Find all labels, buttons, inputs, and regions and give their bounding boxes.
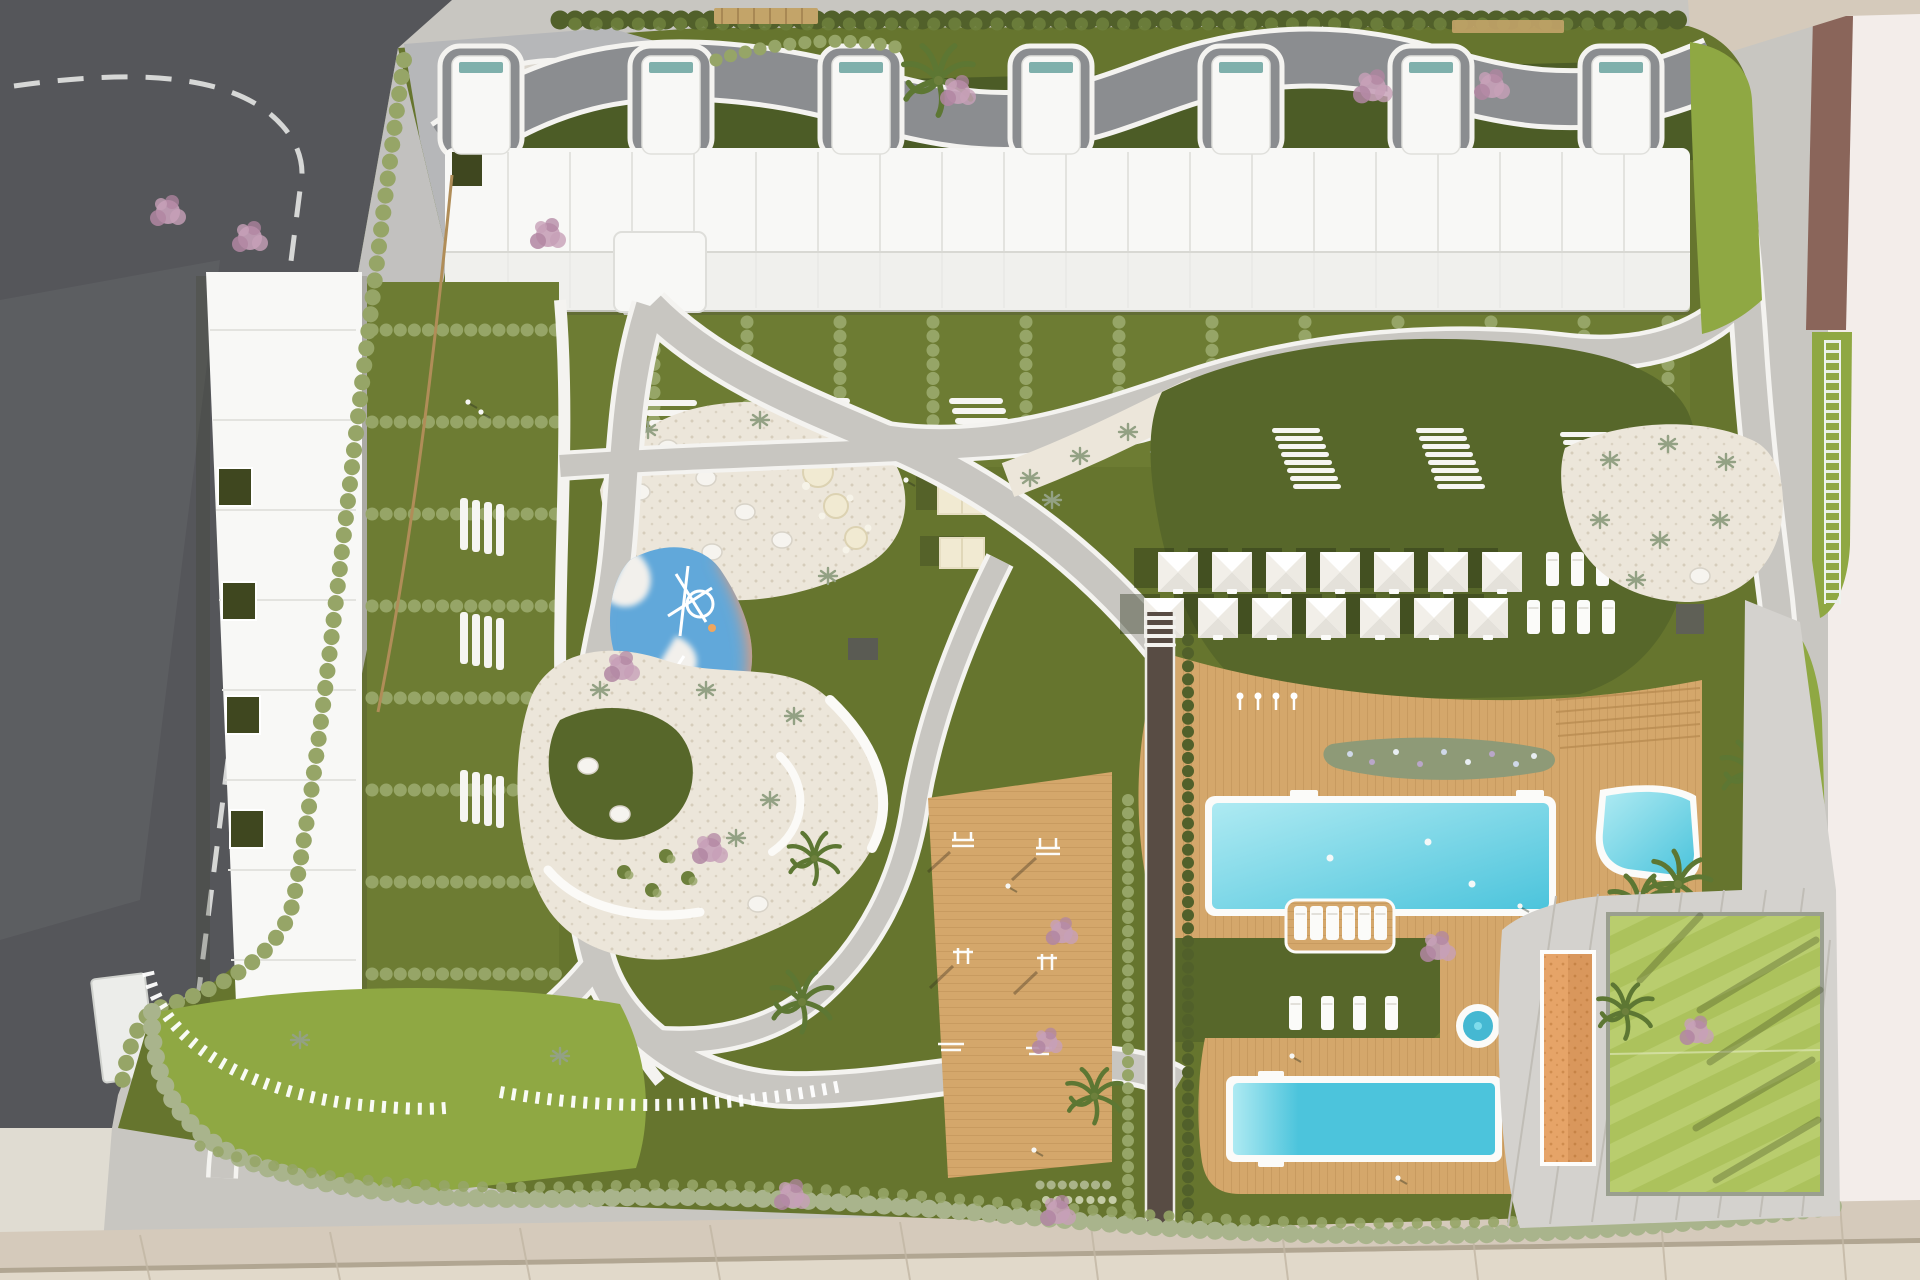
jacuzzi	[1452, 1000, 1504, 1052]
outdoor-gym	[928, 772, 1112, 1178]
pool-lawn-strip	[1160, 938, 1455, 1042]
timber-pergola-2	[1452, 20, 1564, 33]
pool-tech-shed	[1676, 604, 1704, 634]
main-pool	[1205, 790, 1556, 916]
sports-lawn	[1606, 912, 1824, 1196]
park-shed	[848, 638, 878, 660]
petanque-court	[1540, 950, 1596, 1166]
lap-pool	[1226, 1071, 1502, 1167]
site-plan-svg: Aerial top-down architectural render of …	[0, 0, 1920, 1280]
site	[118, 8, 1852, 1235]
roof-patio	[452, 152, 482, 186]
pool-sunbed-platform	[1286, 900, 1394, 952]
site-plan-aerial-render: Aerial top-down architectural render of …	[0, 0, 1920, 1280]
play-figure	[708, 624, 716, 632]
dirt-strip	[1806, 16, 1853, 330]
pool-steps	[1290, 790, 1318, 802]
pool-steps-2	[1516, 790, 1544, 802]
west-building-shadow	[196, 276, 210, 1076]
kids-pool	[1596, 785, 1700, 882]
